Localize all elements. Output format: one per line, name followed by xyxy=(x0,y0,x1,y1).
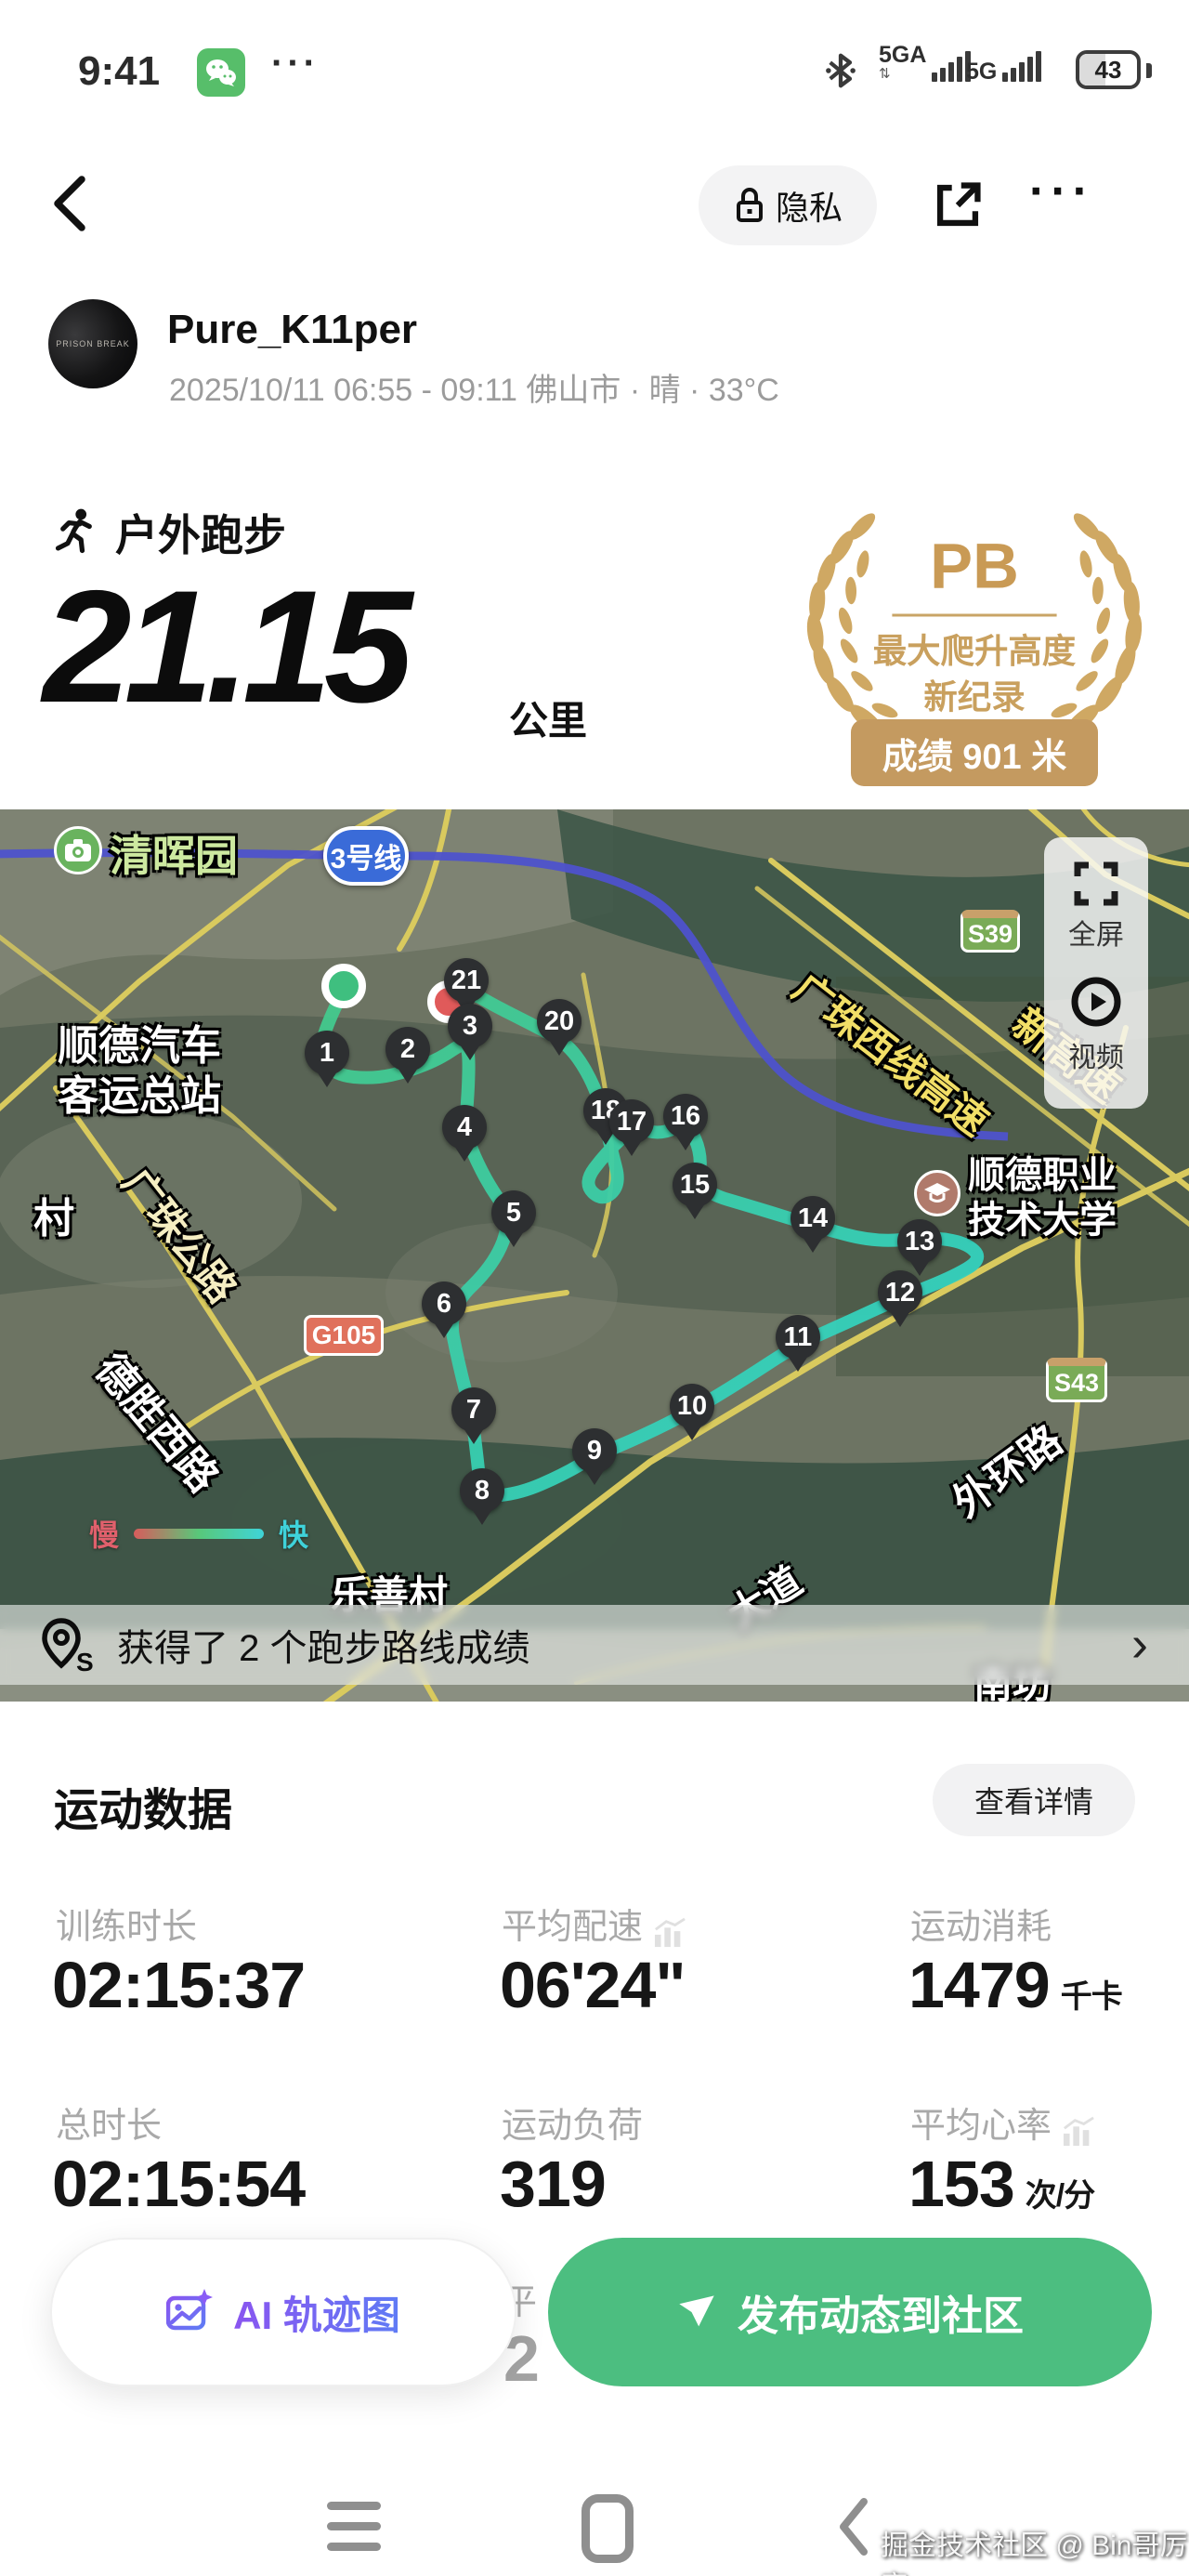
distance-value: 21.15 xyxy=(43,556,405,740)
stat-label-avg-hr: 平均心率 xyxy=(910,2096,1096,2148)
route-start-dot xyxy=(325,967,362,1005)
km-marker-pin: 8 xyxy=(460,1468,504,1513)
nav-recents-button[interactable] xyxy=(327,2502,381,2551)
wechat-icon xyxy=(197,48,245,97)
map-controls-panel: 全屏 视频 xyxy=(1044,837,1148,1109)
stat-label-total-time: 总时长 xyxy=(56,2096,162,2148)
nav-back-button[interactable] xyxy=(834,2494,871,2564)
fullscreen-label[interactable]: 全屏 xyxy=(1068,912,1124,953)
wechat-bubbles-icon xyxy=(203,54,240,91)
battery-nub xyxy=(1146,63,1152,78)
km-marker-pin: 7 xyxy=(451,1387,496,1432)
pb-record-badge: PB 最大爬升高度 新纪录 成绩 901 米 xyxy=(782,500,1167,786)
sport-type-row: 户外跑步 xyxy=(54,502,286,563)
stat-value-pace: 06'24" xyxy=(500,1948,686,2022)
km-marker-pin: 10 xyxy=(670,1384,714,1428)
view-details-button[interactable]: 查看详情 xyxy=(933,1764,1135,1836)
lock-icon xyxy=(733,186,766,225)
user-name[interactable]: Pure_K11per xyxy=(167,307,417,353)
svg-text:最大爬升高度: 最大爬升高度 xyxy=(873,632,1077,670)
pace-legend: 慢 快 xyxy=(89,1512,308,1555)
km-marker-pin: 21 xyxy=(444,958,489,1003)
video-play-icon[interactable] xyxy=(1069,975,1123,1029)
km-marker-pin: 13 xyxy=(897,1219,942,1264)
shield-g105: G105 xyxy=(304,1315,384,1356)
sim2-signal: 5G xyxy=(966,45,1041,82)
sim1-network-type: 5GA xyxy=(879,45,926,65)
km-marker-pin: 14 xyxy=(790,1196,835,1241)
avatar[interactable]: PRISON BREAK xyxy=(48,299,137,388)
back-button[interactable] xyxy=(48,173,91,239)
stat-label-calories: 运动消耗 xyxy=(910,1898,1052,1949)
nav-home-button[interactable] xyxy=(581,2494,634,2563)
video-label[interactable]: 视频 xyxy=(1068,1034,1124,1075)
route-achievement-bar[interactable]: S 获得了 2 个跑步路线成绩 › xyxy=(0,1605,1189,1685)
publish-to-community-button[interactable]: 发布动态到社区 xyxy=(548,2238,1152,2386)
metro-line-badge: 3号线 xyxy=(323,826,409,886)
sim2-network-type: 5G xyxy=(966,61,997,82)
fullscreen-icon[interactable] xyxy=(1074,861,1118,906)
ai-trajectory-label: AI 轨迹图 xyxy=(233,2284,400,2341)
app-screen: 9:41 ··· 5GA⇅ 5G 43 隐私 xyxy=(0,0,1189,2576)
send-icon xyxy=(676,2293,717,2331)
more-options-button[interactable]: ··· xyxy=(1029,164,1094,219)
view-details-label: 查看详情 xyxy=(974,1779,1093,1821)
stat-value-total-time: 02:15:54 xyxy=(52,2147,305,2221)
map-label-university: 顺德职业技术大学 xyxy=(968,1153,1117,1242)
svg-text:新纪录: 新纪录 xyxy=(923,677,1025,716)
stat-value-avg-hr: 153次/分 xyxy=(908,2147,1094,2221)
status-notification-more: ··· xyxy=(271,43,320,85)
km-marker-pin: 6 xyxy=(422,1281,466,1326)
share-icon[interactable] xyxy=(931,178,985,237)
chevron-right-icon[interactable]: › xyxy=(1131,1624,1148,1664)
pb-result-pill: 成绩 901 米 xyxy=(851,719,1098,786)
svg-text:S: S xyxy=(76,1648,93,1673)
map-label-qinghuiyuan: 清晖园 xyxy=(110,822,238,884)
university-poi-icon xyxy=(914,1170,960,1216)
watermark: 掘金技术社区 @ Bin哥厉害 xyxy=(881,2522,1189,2576)
km-marker-pin: 4 xyxy=(442,1105,487,1150)
km-marker-pin: 2 xyxy=(385,1027,430,1071)
km-marker-pin: 12 xyxy=(878,1270,922,1315)
km-marker-pin: 3 xyxy=(448,1004,492,1048)
activity-meta: 2025/10/11 06:55 - 09:11 佛山市 · 晴 · 33°C xyxy=(169,364,779,410)
stat-value-duration: 02:15:37 xyxy=(52,1948,305,2022)
km-marker-pin: 17 xyxy=(609,1099,654,1144)
map-label-village-partial: 村 xyxy=(33,1185,74,1244)
hr-chart-icon[interactable] xyxy=(1061,2116,1096,2148)
stat-label-duration: 训练时长 xyxy=(56,1898,197,1949)
km-marker-pin: 9 xyxy=(572,1428,617,1473)
stat-value-training-load: 319 xyxy=(500,2147,606,2221)
km-marker-pin: 15 xyxy=(673,1163,717,1207)
route-map[interactable]: 清晖园 3号线 S39 广珠西线高速 新高速 顺德汽车客运总站 顺德职业技术大学… xyxy=(0,809,1189,1702)
km-marker-pin: 11 xyxy=(776,1315,820,1360)
privacy-button[interactable]: 隐私 xyxy=(699,165,877,245)
distance-unit: 公里 xyxy=(509,690,587,746)
km-marker-pin: 1 xyxy=(305,1031,349,1075)
bluetooth-icon xyxy=(825,52,856,94)
laurel-wreath-icon: PB 最大爬升高度 新纪录 xyxy=(782,500,1167,734)
runner-icon xyxy=(54,508,98,557)
shield-s39: S39 xyxy=(960,910,1020,953)
sport-type-label: 户外跑步 xyxy=(115,502,286,563)
ai-trajectory-button[interactable]: AI 轨迹图 xyxy=(50,2238,516,2386)
pb-result: 成绩 901 米 xyxy=(882,728,1067,779)
ai-image-icon xyxy=(166,2289,215,2335)
sim1-signal: 5GA⇅ xyxy=(879,45,971,82)
avatar-caption: PRISON BREAK xyxy=(56,339,130,348)
km-marker-pin: 20 xyxy=(537,999,581,1044)
status-time: 9:41 xyxy=(78,48,160,95)
camera-poi-icon xyxy=(54,826,102,874)
sim2-signal-bars-icon xyxy=(1002,45,1041,82)
stat-value-calories: 1479千卡 xyxy=(908,1948,1122,2022)
publish-label: 发布动态到社区 xyxy=(738,2282,1024,2342)
km-marker-pin: 5 xyxy=(491,1190,536,1235)
map-label-bus-station: 顺德汽车客运总站 xyxy=(58,1021,221,1122)
pace-fast-label: 快 xyxy=(279,1512,308,1555)
shield-s43: S43 xyxy=(1046,1358,1107,1402)
battery-indicator: 43 xyxy=(1076,50,1141,89)
route-achievement-text: 获得了 2 个跑步路线成绩 xyxy=(117,1618,1107,1672)
privacy-label: 隐私 xyxy=(776,181,843,230)
pb-title: PB xyxy=(930,531,1019,602)
battery-percent: 43 xyxy=(1095,56,1122,85)
pace-slow-label: 慢 xyxy=(89,1512,119,1555)
pace-gradient-bar xyxy=(134,1529,264,1539)
km-marker-pin: 16 xyxy=(663,1094,708,1138)
stat-label-training-load: 运动负荷 xyxy=(502,2096,643,2148)
stat-label-pace: 平均配速 xyxy=(502,1898,687,1949)
sport-data-title: 运动数据 xyxy=(54,1773,232,1838)
pace-chart-icon[interactable] xyxy=(652,1917,687,1949)
route-pin-icon: S xyxy=(41,1617,93,1673)
